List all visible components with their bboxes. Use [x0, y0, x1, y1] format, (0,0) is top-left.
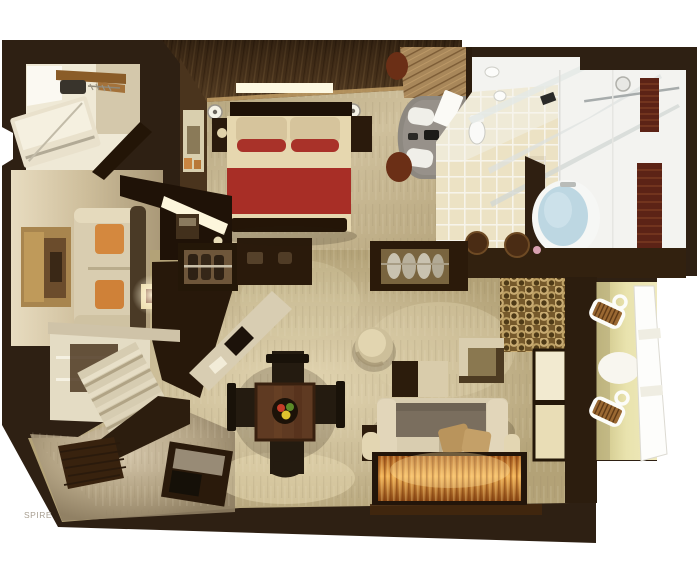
svg-text:SPIRE: SPIRE [24, 510, 52, 520]
